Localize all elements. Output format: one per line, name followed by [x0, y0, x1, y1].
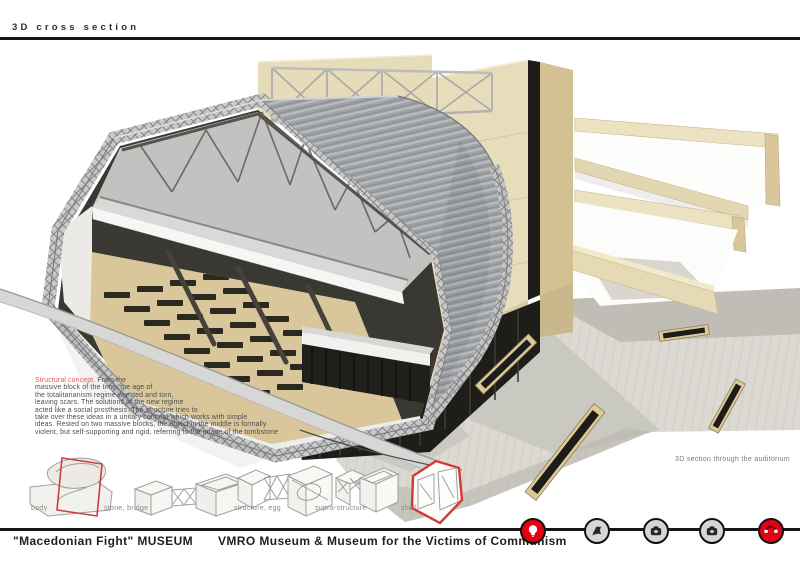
camera-icon[interactable]: [643, 518, 669, 544]
diagram-stone-bridge: [135, 474, 246, 516]
annotation-line: Structural concept. From the: [35, 377, 278, 384]
building-illustration: [0, 0, 800, 568]
flag-icon[interactable]: [584, 518, 610, 544]
annotation-line: acted like a social prosthesis. The stru…: [35, 407, 278, 414]
annotation-line: take over these ideas in a unitary conce…: [35, 414, 278, 421]
lightbulb-icon[interactable]: [520, 518, 546, 544]
annotation-line: the totalitarianism regime wrested and t…: [35, 392, 278, 399]
section-caption: 3D section through the auditorium: [675, 456, 790, 463]
annotation-heading: Structural concept.: [35, 377, 95, 384]
annotation-line: leaving scars. The solutions of the new …: [35, 399, 278, 406]
rotate-icon[interactable]: [758, 518, 784, 544]
diagram-label-body: body: [31, 505, 47, 512]
structural-concept-text: Structural concept. From the massive blo…: [35, 377, 278, 436]
page-title: 3D cross section: [12, 22, 139, 33]
annotation-line: violent, but self-supporting and rigid, …: [35, 429, 278, 436]
diagram-label-supra-structure: supra-structure: [315, 505, 367, 512]
footer-rule: [0, 528, 800, 531]
project-title: "Macedonian Fight" MUSEUM: [13, 534, 193, 548]
presentation-board: 3D cross section: [0, 0, 800, 568]
header-rule: [0, 37, 800, 40]
diagram-label-stone-bridge: stone, bridge: [104, 505, 148, 512]
camera-icon[interactable]: [699, 518, 725, 544]
diagram-label-structure-egg: structure, egg: [234, 505, 281, 512]
annotation-line: ideas. Rested on two massive blocks, the…: [35, 421, 278, 428]
diagram-label-shell: shell: [401, 505, 417, 512]
museum-title: VMRO Museum & Museum for the Victims of …: [218, 534, 567, 548]
annotation-line: massive block of the time, the age of: [35, 384, 278, 391]
